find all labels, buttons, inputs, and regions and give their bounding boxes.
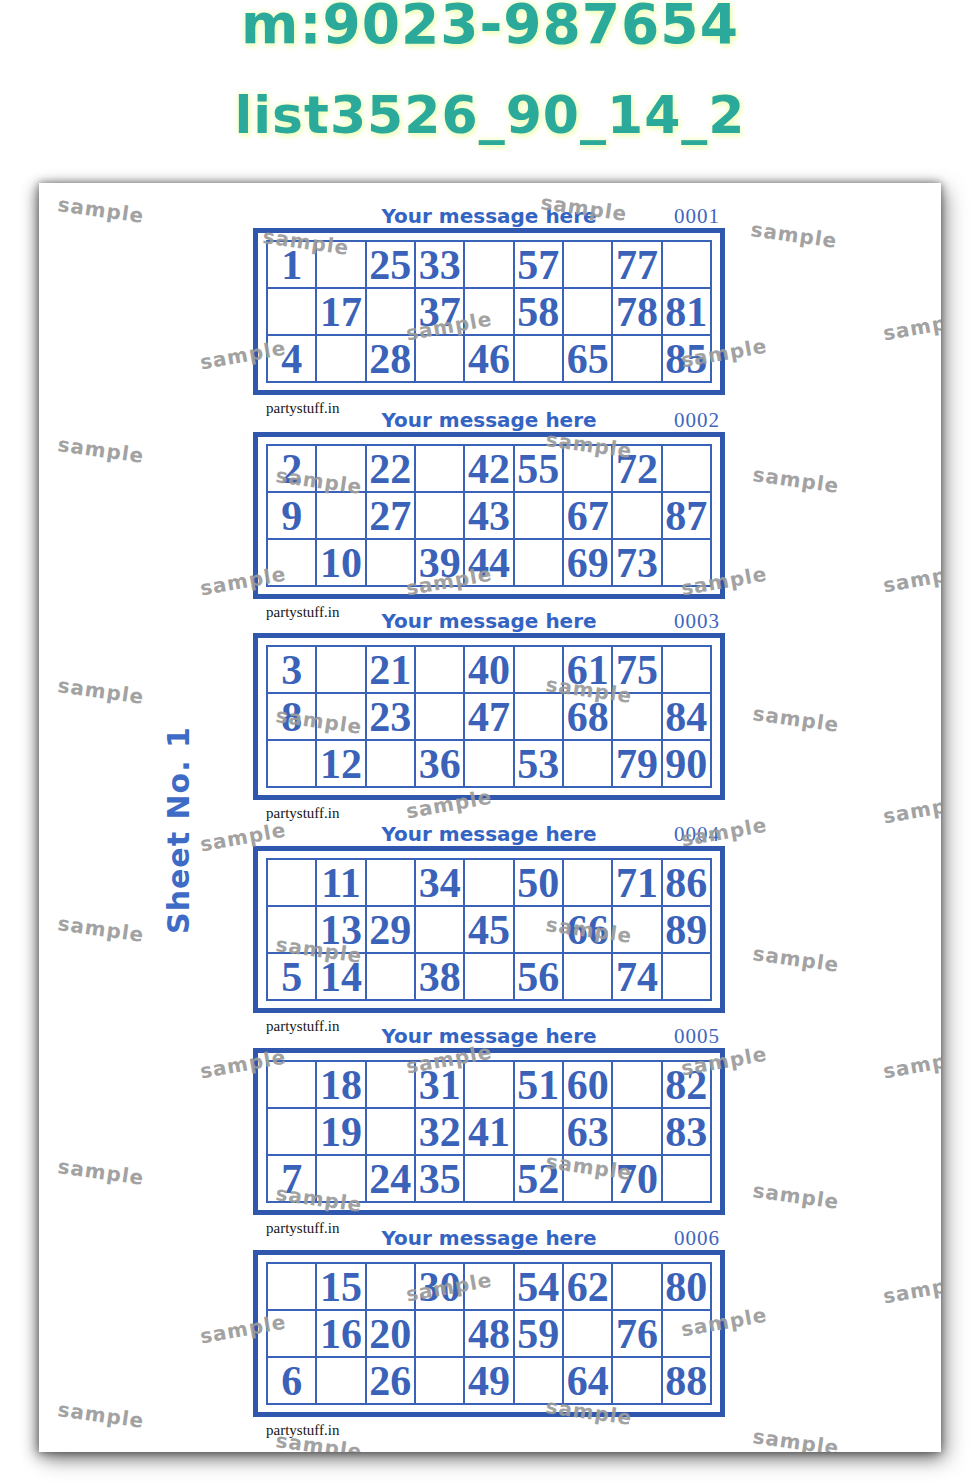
sample-watermark: sample bbox=[751, 1424, 840, 1452]
ticket: Your message here 0005 18315160821932416… bbox=[253, 1024, 725, 1237]
grid-row: 927436787 bbox=[267, 492, 711, 539]
grid-row: 1039446973 bbox=[267, 539, 711, 586]
grid-cell: 90 bbox=[662, 740, 711, 787]
grid-cell: 17 bbox=[316, 288, 365, 335]
grid-cell: 88 bbox=[662, 1357, 711, 1404]
grid-cell: 45 bbox=[464, 906, 513, 953]
grid-row: 428466585 bbox=[267, 335, 711, 382]
grid-cell-empty bbox=[514, 906, 563, 953]
ticket-number: 0004 bbox=[674, 822, 720, 847]
grid-cell-empty bbox=[464, 241, 513, 288]
grid-cell: 44 bbox=[464, 539, 513, 586]
list-id-line: list3526_90_14_2 bbox=[0, 85, 980, 145]
grid-cell-empty bbox=[563, 1155, 612, 1202]
ticket-grid: 11345071861329456689514385674 bbox=[253, 846, 725, 1013]
ticket-message: Your message here bbox=[253, 204, 725, 228]
sample-watermark: sample bbox=[56, 432, 145, 468]
number-grid: 11345071861329456689514385674 bbox=[266, 858, 712, 1001]
grid-cell-empty bbox=[415, 646, 464, 693]
ticket-number: 0005 bbox=[674, 1024, 720, 1049]
grid-cell: 42 bbox=[464, 445, 513, 492]
ticket-header: Your message here 0006 bbox=[253, 1226, 725, 1250]
grid-cell: 57 bbox=[514, 241, 563, 288]
number-grid: 2224255729274367871039446973 bbox=[266, 444, 712, 587]
grid-cell-empty bbox=[366, 1108, 415, 1155]
sample-watermark: sample bbox=[749, 217, 838, 253]
grid-cell: 2 bbox=[267, 445, 316, 492]
grid-cell: 53 bbox=[514, 740, 563, 787]
phone-line: m:9023-987654 bbox=[0, 0, 980, 56]
grid-cell-empty bbox=[464, 1263, 513, 1310]
sample-watermark: sample bbox=[881, 559, 941, 598]
sample-watermark: sample bbox=[881, 1045, 941, 1084]
grid-cell-empty bbox=[514, 335, 563, 382]
grid-cell: 41 bbox=[464, 1108, 513, 1155]
grid-cell-empty bbox=[267, 1061, 316, 1108]
grid-cell-empty bbox=[366, 1061, 415, 1108]
sample-watermark: sample bbox=[56, 911, 145, 947]
grid-cell: 32 bbox=[415, 1108, 464, 1155]
grid-cell: 40 bbox=[464, 646, 513, 693]
grid-cell: 67 bbox=[563, 492, 612, 539]
grid-cell: 78 bbox=[612, 288, 661, 335]
grid-cell-empty bbox=[612, 335, 661, 382]
ticket-header: Your message here 0005 bbox=[253, 1024, 725, 1048]
grid-cell-empty bbox=[514, 693, 563, 740]
grid-cell: 86 bbox=[662, 859, 711, 906]
grid-cell: 12 bbox=[316, 740, 365, 787]
number-grid: 1253357771737587881428466585 bbox=[266, 240, 712, 383]
grid-cell-empty bbox=[662, 953, 711, 1000]
grid-row: 125335777 bbox=[267, 241, 711, 288]
sample-watermark: sample bbox=[56, 192, 145, 228]
grid-row: 1737587881 bbox=[267, 288, 711, 335]
ticket: Your message here 0002 22242557292743678… bbox=[253, 408, 725, 621]
grid-cell-empty bbox=[662, 241, 711, 288]
grid-cell: 25 bbox=[366, 241, 415, 288]
grid-cell-empty bbox=[316, 1155, 365, 1202]
sample-watermark: sample bbox=[56, 673, 145, 709]
grid-cell-empty bbox=[415, 335, 464, 382]
grid-cell: 65 bbox=[563, 335, 612, 382]
grid-cell: 68 bbox=[563, 693, 612, 740]
grid-cell: 28 bbox=[366, 335, 415, 382]
grid-cell-empty bbox=[316, 445, 365, 492]
grid-cell-empty bbox=[464, 859, 513, 906]
grid-cell: 61 bbox=[563, 646, 612, 693]
grid-cell: 79 bbox=[612, 740, 661, 787]
ticket-message: Your message here bbox=[253, 822, 725, 846]
grid-cell: 81 bbox=[662, 288, 711, 335]
grid-cell-empty bbox=[514, 646, 563, 693]
ticket: Your message here 0006 15305462801620485… bbox=[253, 1226, 725, 1439]
grid-cell-empty bbox=[563, 241, 612, 288]
grid-row: 1932416383 bbox=[267, 1108, 711, 1155]
grid-cell-empty bbox=[612, 1061, 661, 1108]
grid-cell-empty bbox=[415, 693, 464, 740]
grid-cell-empty bbox=[612, 1357, 661, 1404]
grid-cell-empty bbox=[464, 953, 513, 1000]
grid-cell: 22 bbox=[366, 445, 415, 492]
grid-cell: 84 bbox=[662, 693, 711, 740]
ticket-message: Your message here bbox=[253, 408, 725, 432]
ticket-number: 0006 bbox=[674, 1226, 720, 1251]
grid-cell-empty bbox=[662, 1155, 711, 1202]
grid-row: 321406175 bbox=[267, 646, 711, 693]
grid-cell: 87 bbox=[662, 492, 711, 539]
grid-cell: 58 bbox=[514, 288, 563, 335]
grid-cell: 38 bbox=[415, 953, 464, 1000]
grid-cell: 31 bbox=[415, 1061, 464, 1108]
number-grid: 18315160821932416383724355270 bbox=[266, 1060, 712, 1203]
grid-cell: 27 bbox=[366, 492, 415, 539]
grid-cell-empty bbox=[662, 646, 711, 693]
ticket-grid: 3214061758234768841236537990 bbox=[253, 633, 725, 800]
grid-cell-empty bbox=[366, 1263, 415, 1310]
grid-cell: 7 bbox=[267, 1155, 316, 1202]
grid-cell: 82 bbox=[662, 1061, 711, 1108]
grid-cell: 10 bbox=[316, 539, 365, 586]
grid-cell-empty bbox=[514, 1108, 563, 1155]
sample-watermark: sample bbox=[751, 1178, 840, 1214]
grid-cell-empty bbox=[563, 445, 612, 492]
grid-cell: 54 bbox=[514, 1263, 563, 1310]
grid-cell: 76 bbox=[612, 1310, 661, 1357]
sample-watermark: sample bbox=[881, 1270, 941, 1309]
grid-row: 1530546280 bbox=[267, 1263, 711, 1310]
grid-cell: 8 bbox=[267, 693, 316, 740]
grid-cell-empty bbox=[612, 693, 661, 740]
grid-cell: 64 bbox=[563, 1357, 612, 1404]
grid-cell-empty bbox=[267, 1310, 316, 1357]
grid-cell: 77 bbox=[612, 241, 661, 288]
grid-cell-empty bbox=[612, 906, 661, 953]
grid-row: 1831516082 bbox=[267, 1061, 711, 1108]
grid-cell: 39 bbox=[415, 539, 464, 586]
grid-cell: 33 bbox=[415, 241, 464, 288]
brand-label: partystuff.in bbox=[266, 1422, 725, 1439]
grid-cell: 30 bbox=[415, 1263, 464, 1310]
grid-cell: 50 bbox=[514, 859, 563, 906]
grid-cell-empty bbox=[662, 1310, 711, 1357]
grid-cell-empty bbox=[563, 1310, 612, 1357]
ticket: Your message here 0004 11345071861329456… bbox=[253, 822, 725, 1035]
grid-cell-empty bbox=[662, 539, 711, 586]
grid-cell: 19 bbox=[316, 1108, 365, 1155]
grid-cell: 24 bbox=[366, 1155, 415, 1202]
sample-watermark: sample bbox=[56, 1154, 145, 1190]
grid-cell-empty bbox=[415, 906, 464, 953]
grid-row: 1329456689 bbox=[267, 906, 711, 953]
ticket-sheet-page: Sheet No. 1 Your message here 0001 12533… bbox=[39, 183, 941, 1452]
grid-cell: 70 bbox=[612, 1155, 661, 1202]
grid-cell: 48 bbox=[464, 1310, 513, 1357]
sample-watermark: sample bbox=[751, 941, 840, 977]
grid-cell: 85 bbox=[662, 335, 711, 382]
grid-cell: 73 bbox=[612, 539, 661, 586]
grid-cell: 5 bbox=[267, 953, 316, 1000]
grid-cell-empty bbox=[563, 740, 612, 787]
ticket-header: Your message here 0004 bbox=[253, 822, 725, 846]
grid-cell-empty bbox=[612, 492, 661, 539]
ticket-grid: 2224255729274367871039446973 bbox=[253, 432, 725, 599]
grid-cell-empty bbox=[267, 1263, 316, 1310]
grid-cell: 18 bbox=[316, 1061, 365, 1108]
grid-cell-empty bbox=[267, 740, 316, 787]
ticket-header: Your message here 0001 bbox=[253, 204, 725, 228]
ticket-message: Your message here bbox=[253, 1024, 725, 1048]
sample-watermark: sample bbox=[751, 462, 840, 498]
grid-row: 1620485976 bbox=[267, 1310, 711, 1357]
grid-cell-empty bbox=[464, 740, 513, 787]
grid-cell-empty bbox=[316, 492, 365, 539]
grid-row: 626496488 bbox=[267, 1357, 711, 1404]
grid-cell-empty bbox=[366, 740, 415, 787]
ticket: Your message here 0001 12533577717375878… bbox=[253, 204, 725, 417]
grid-cell-empty bbox=[612, 1263, 661, 1310]
ticket-number: 0003 bbox=[674, 609, 720, 634]
grid-cell-empty bbox=[464, 1155, 513, 1202]
sample-watermark: sample bbox=[56, 1397, 145, 1433]
grid-cell: 62 bbox=[563, 1263, 612, 1310]
grid-cell: 4 bbox=[267, 335, 316, 382]
grid-cell: 15 bbox=[316, 1263, 365, 1310]
grid-cell-empty bbox=[316, 241, 365, 288]
sample-watermark: sample bbox=[751, 701, 840, 737]
grid-cell: 11 bbox=[316, 859, 365, 906]
grid-row: 222425572 bbox=[267, 445, 711, 492]
grid-cell-empty bbox=[514, 1357, 563, 1404]
sample-watermark: sample bbox=[881, 307, 941, 346]
grid-cell: 75 bbox=[612, 646, 661, 693]
grid-cell: 43 bbox=[464, 492, 513, 539]
grid-cell: 1 bbox=[267, 241, 316, 288]
grid-cell-empty bbox=[514, 492, 563, 539]
grid-cell: 3 bbox=[267, 646, 316, 693]
grid-cell: 49 bbox=[464, 1357, 513, 1404]
grid-cell-empty bbox=[267, 1108, 316, 1155]
grid-cell-empty bbox=[366, 953, 415, 1000]
grid-cell: 83 bbox=[662, 1108, 711, 1155]
grid-cell-empty bbox=[267, 539, 316, 586]
ticket: Your message here 0003 32140617582347688… bbox=[253, 609, 725, 822]
grid-cell: 80 bbox=[662, 1263, 711, 1310]
grid-cell: 6 bbox=[267, 1357, 316, 1404]
grid-cell-empty bbox=[662, 445, 711, 492]
grid-cell-empty bbox=[267, 288, 316, 335]
grid-cell: 34 bbox=[415, 859, 464, 906]
grid-cell: 35 bbox=[415, 1155, 464, 1202]
grid-row: 724355270 bbox=[267, 1155, 711, 1202]
grid-cell-empty bbox=[366, 288, 415, 335]
grid-cell: 51 bbox=[514, 1061, 563, 1108]
grid-cell: 23 bbox=[366, 693, 415, 740]
grid-cell: 26 bbox=[366, 1357, 415, 1404]
grid-cell-empty bbox=[267, 859, 316, 906]
grid-cell: 52 bbox=[514, 1155, 563, 1202]
grid-cell: 69 bbox=[563, 539, 612, 586]
sheet-number-label: Sheet No. 1 bbox=[161, 726, 196, 934]
grid-cell-empty bbox=[366, 539, 415, 586]
grid-cell-empty bbox=[563, 288, 612, 335]
grid-cell: 66 bbox=[563, 906, 612, 953]
grid-cell: 74 bbox=[612, 953, 661, 1000]
number-grid: 15305462801620485976626496488 bbox=[266, 1262, 712, 1405]
grid-cell: 13 bbox=[316, 906, 365, 953]
grid-cell: 47 bbox=[464, 693, 513, 740]
grid-cell: 59 bbox=[514, 1310, 563, 1357]
grid-cell: 36 bbox=[415, 740, 464, 787]
grid-cell: 63 bbox=[563, 1108, 612, 1155]
ticket-grid: 15305462801620485976626496488 bbox=[253, 1250, 725, 1417]
grid-cell-empty bbox=[563, 859, 612, 906]
grid-cell-empty bbox=[563, 953, 612, 1000]
grid-cell-empty bbox=[267, 906, 316, 953]
grid-cell: 89 bbox=[662, 906, 711, 953]
grid-cell-empty bbox=[415, 445, 464, 492]
ticket-message: Your message here bbox=[253, 609, 725, 633]
number-grid: 3214061758234768841236537990 bbox=[266, 645, 712, 788]
grid-cell: 71 bbox=[612, 859, 661, 906]
grid-cell-empty bbox=[514, 539, 563, 586]
grid-cell-empty bbox=[464, 1061, 513, 1108]
grid-row: 1134507186 bbox=[267, 859, 711, 906]
grid-cell-empty bbox=[366, 859, 415, 906]
ticket-grid: 18315160821932416383724355270 bbox=[253, 1048, 725, 1215]
grid-cell: 46 bbox=[464, 335, 513, 382]
grid-cell: 16 bbox=[316, 1310, 365, 1357]
ticket-header: Your message here 0002 bbox=[253, 408, 725, 432]
sample-watermark: sample bbox=[881, 790, 941, 829]
grid-cell: 56 bbox=[514, 953, 563, 1000]
grid-cell: 21 bbox=[366, 646, 415, 693]
grid-cell-empty bbox=[316, 693, 365, 740]
ticket-message: Your message here bbox=[253, 1226, 725, 1250]
grid-cell: 9 bbox=[267, 492, 316, 539]
grid-row: 514385674 bbox=[267, 953, 711, 1000]
grid-cell-empty bbox=[612, 1108, 661, 1155]
grid-cell: 72 bbox=[612, 445, 661, 492]
brand-label: partystuff.in bbox=[266, 805, 725, 822]
grid-cell: 14 bbox=[316, 953, 365, 1000]
grid-cell-empty bbox=[316, 1357, 365, 1404]
grid-cell: 60 bbox=[563, 1061, 612, 1108]
grid-cell-empty bbox=[415, 1310, 464, 1357]
ticket-number: 0001 bbox=[674, 204, 720, 229]
grid-cell: 55 bbox=[514, 445, 563, 492]
grid-cell-empty bbox=[464, 288, 513, 335]
ticket-number: 0002 bbox=[674, 408, 720, 433]
grid-row: 1236537990 bbox=[267, 740, 711, 787]
grid-cell-empty bbox=[415, 1357, 464, 1404]
grid-cell-empty bbox=[316, 335, 365, 382]
ticket-grid: 1253357771737587881428466585 bbox=[253, 228, 725, 395]
ticket-header: Your message here 0003 bbox=[253, 609, 725, 633]
grid-cell: 37 bbox=[415, 288, 464, 335]
grid-cell-empty bbox=[316, 646, 365, 693]
grid-cell-empty bbox=[415, 492, 464, 539]
grid-cell: 29 bbox=[366, 906, 415, 953]
grid-cell: 20 bbox=[366, 1310, 415, 1357]
grid-row: 823476884 bbox=[267, 693, 711, 740]
